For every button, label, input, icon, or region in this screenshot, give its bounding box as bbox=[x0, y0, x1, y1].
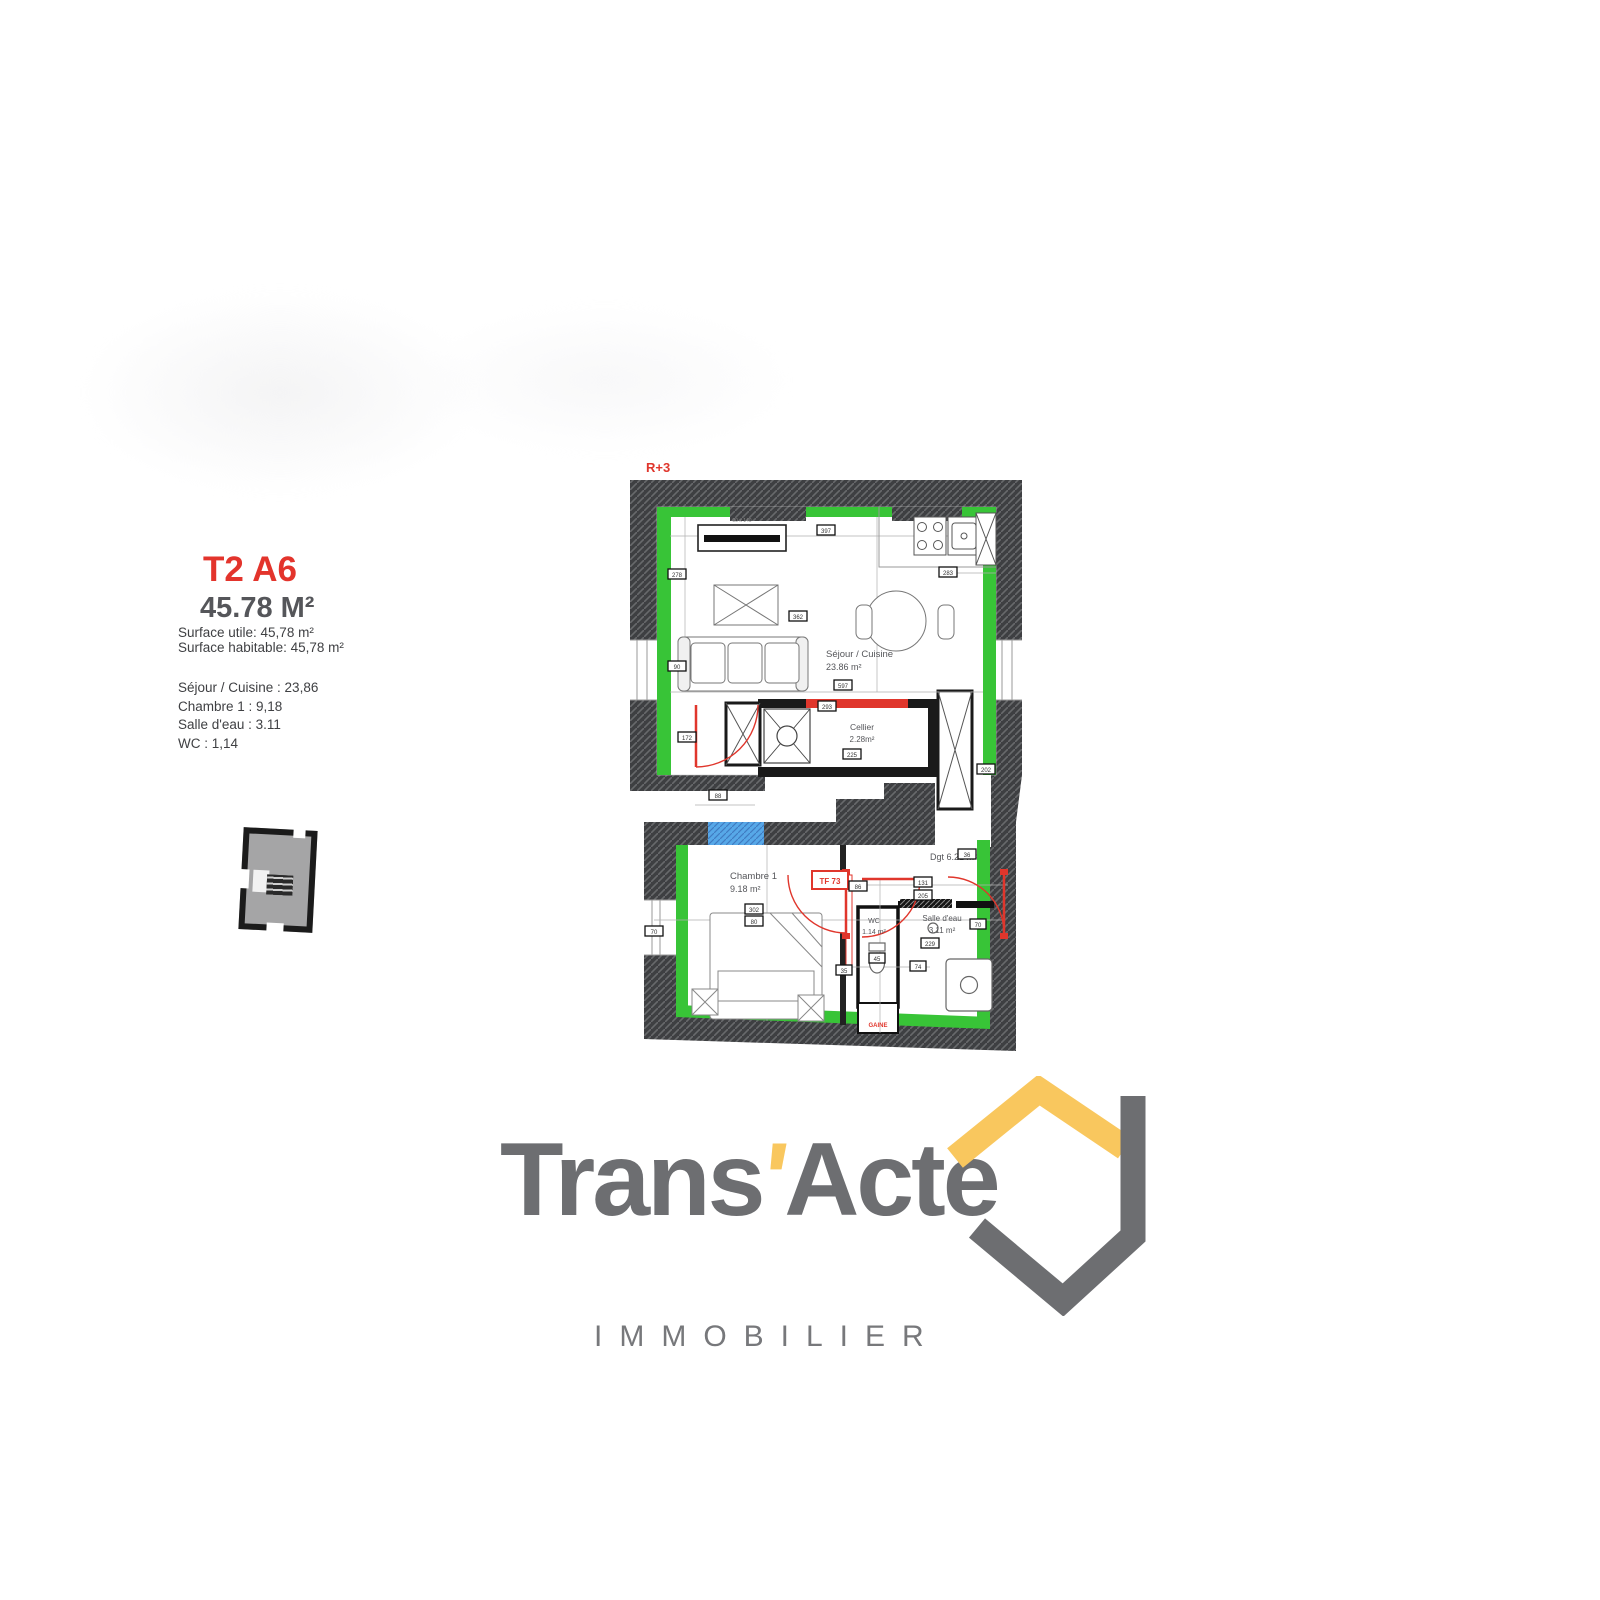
brand-logo-text: Trans'Acte bbox=[500, 1128, 998, 1232]
svg-text:362: 362 bbox=[793, 615, 804, 621]
surface-utile: Surface utile: 45,78 m² bbox=[178, 625, 344, 640]
toilet-tank bbox=[869, 943, 885, 951]
key-plan-window-notch bbox=[266, 922, 283, 932]
svg-text:293: 293 bbox=[822, 705, 833, 711]
cellier-label: Cellier bbox=[850, 722, 874, 732]
svg-text:172: 172 bbox=[682, 736, 693, 742]
sejour-area: 23.86 m² bbox=[826, 662, 862, 672]
chambre-area: 9.18 m² bbox=[730, 884, 761, 894]
faint-watermark-2 bbox=[420, 305, 790, 455]
key-plan-thumbnail bbox=[238, 827, 317, 933]
floor-plan-svg: R+3 bbox=[630, 455, 1026, 1055]
radiator-label: 90 x 140 bbox=[732, 518, 751, 524]
room-line-wc: WC : 1,14 bbox=[178, 735, 344, 754]
sejour-label: Séjour / Cuisine bbox=[826, 649, 893, 660]
shower-drain bbox=[961, 977, 978, 994]
key-plan-window-notch bbox=[293, 829, 305, 839]
svg-text:88: 88 bbox=[715, 794, 722, 800]
svg-text:70: 70 bbox=[651, 930, 658, 936]
brand-prefix: Trans bbox=[500, 1122, 762, 1238]
svg-text:36: 36 bbox=[964, 853, 971, 859]
salle-eau-area: 3.11 m² bbox=[929, 926, 956, 935]
svg-text:90: 90 bbox=[674, 665, 681, 671]
room-line-sejour: Séjour / Cuisine : 23,86 bbox=[178, 679, 344, 698]
key-plan-window-notch bbox=[240, 869, 250, 888]
unit-area: 45.78 M² bbox=[200, 592, 344, 625]
wc-area: 1.14 m² bbox=[862, 929, 886, 936]
salle-eau-label: Salle d'eau bbox=[922, 914, 961, 923]
svg-text:80: 80 bbox=[751, 920, 758, 926]
room-areas-list: Séjour / Cuisine : 23,86 Chambre 1 : 9,1… bbox=[178, 679, 344, 753]
svg-text:229: 229 bbox=[925, 942, 936, 948]
brand-house-icon bbox=[933, 1076, 1169, 1316]
room-line-chambre: Chambre 1 : 9,18 bbox=[178, 698, 344, 717]
svg-text:45: 45 bbox=[874, 957, 881, 963]
floor-plan: R+3 bbox=[630, 455, 1026, 1055]
stove bbox=[914, 517, 946, 555]
furniture-chambre bbox=[692, 913, 824, 1021]
svg-text:278: 278 bbox=[672, 573, 683, 579]
wc-label: WC bbox=[868, 918, 880, 925]
svg-text:225: 225 bbox=[847, 753, 858, 759]
svg-text:86: 86 bbox=[855, 885, 862, 891]
svg-text:70: 70 bbox=[975, 923, 982, 929]
house-roof bbox=[955, 1090, 1125, 1158]
chambre-label: Chambre 1 bbox=[730, 871, 777, 882]
window-tag-label: TF 73 bbox=[820, 877, 841, 886]
info-panel: T2 A6 45.78 M² Surface utile: 45,78 m² S… bbox=[178, 552, 344, 753]
svg-text:35: 35 bbox=[841, 969, 848, 975]
svg-text:205: 205 bbox=[918, 894, 929, 900]
level-label: R+3 bbox=[646, 460, 670, 475]
highlighted-window-blue bbox=[708, 822, 764, 845]
svg-text:302: 302 bbox=[749, 908, 760, 914]
svg-text:131: 131 bbox=[918, 881, 929, 887]
duct-label: GAINE bbox=[868, 1023, 887, 1029]
room-line-salle-eau: Salle d'eau : 3.11 bbox=[178, 716, 344, 735]
svg-text:597: 597 bbox=[838, 684, 849, 690]
svg-text:397: 397 bbox=[821, 529, 832, 535]
svg-text:283: 283 bbox=[943, 571, 954, 577]
svg-text:74: 74 bbox=[915, 965, 922, 971]
surface-habitable: Surface habitable: 45,78 m² bbox=[178, 640, 344, 655]
page: { "info_panel": { "unit_title": "T2 A6",… bbox=[0, 0, 1600, 1600]
key-plan-detail bbox=[266, 874, 293, 895]
sofa bbox=[678, 637, 808, 691]
brand-subtitle: IMMOBILIER bbox=[594, 1320, 941, 1354]
cellier-area: 2.28m² bbox=[850, 735, 875, 744]
unit-title: T2 A6 bbox=[203, 552, 344, 587]
svg-text:202: 202 bbox=[981, 768, 992, 774]
washing-machine bbox=[764, 709, 810, 763]
